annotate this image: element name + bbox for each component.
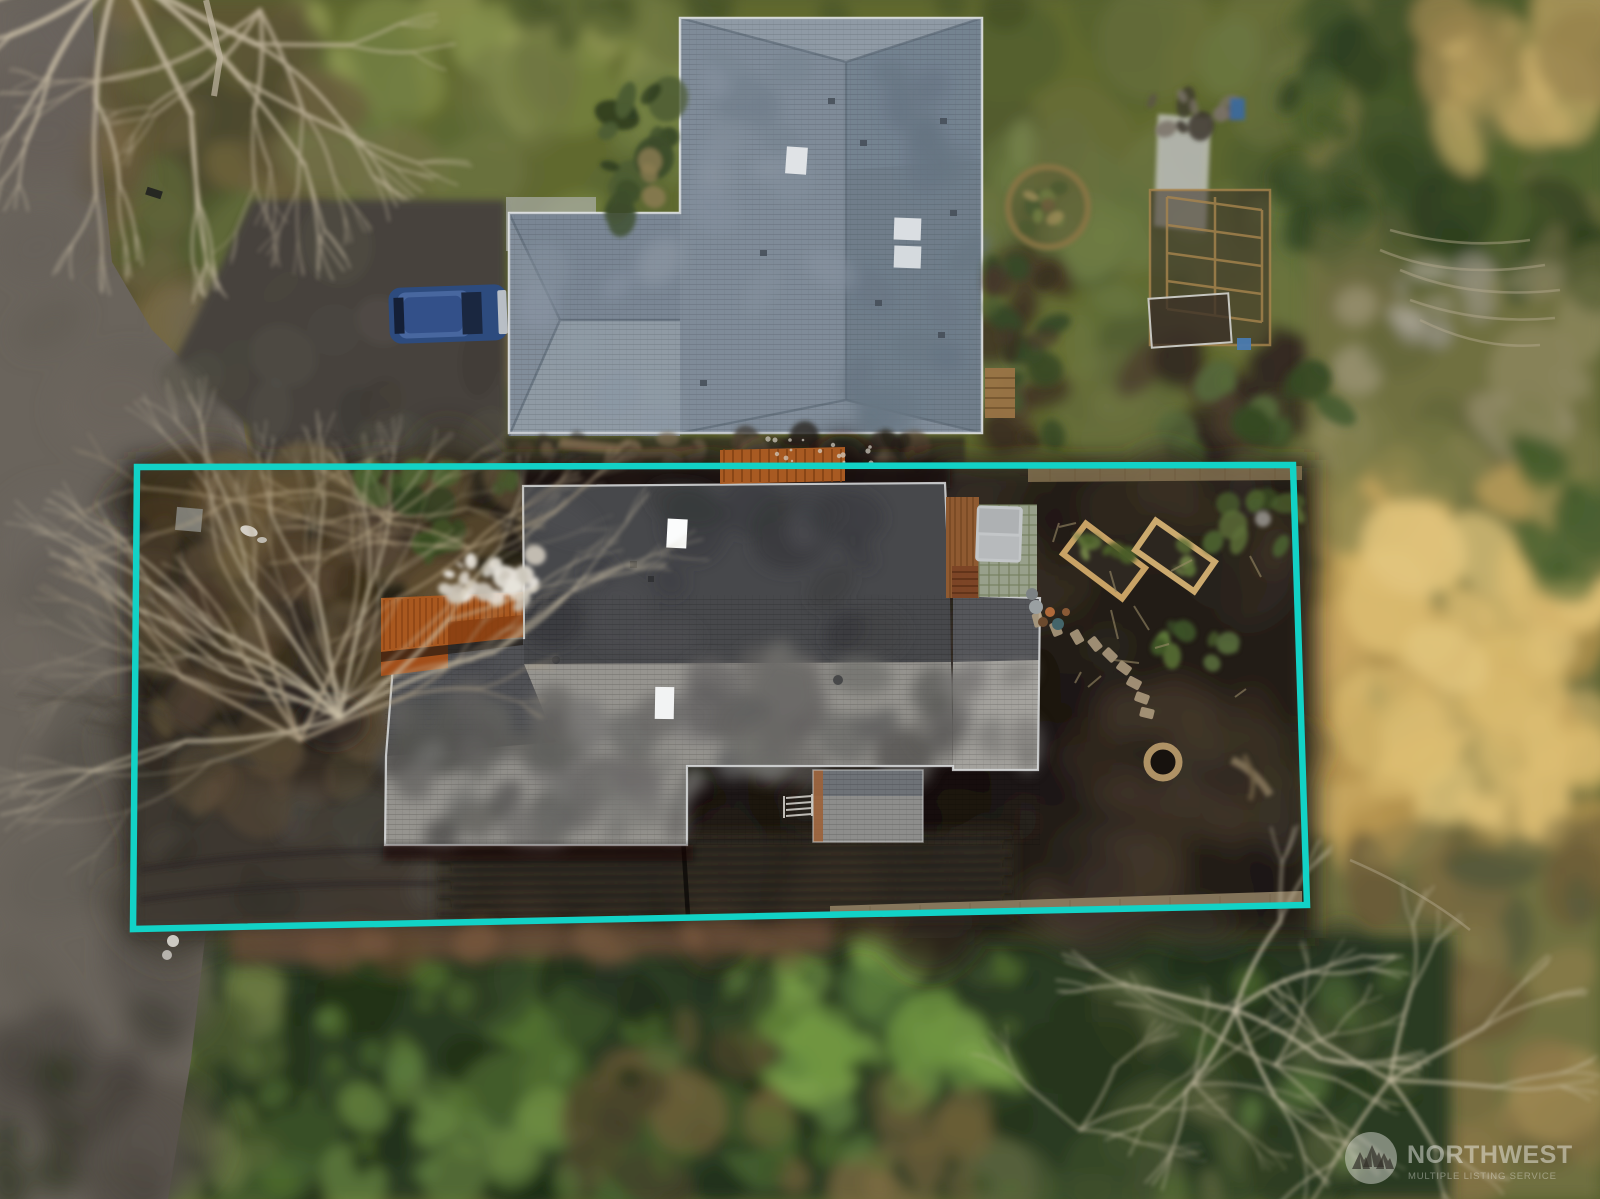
svg-text:NORTHWEST: NORTHWEST (1407, 1141, 1573, 1169)
svg-text:MULTIPLE LISTING SERVICE: MULTIPLE LISTING SERVICE (1408, 1171, 1557, 1182)
